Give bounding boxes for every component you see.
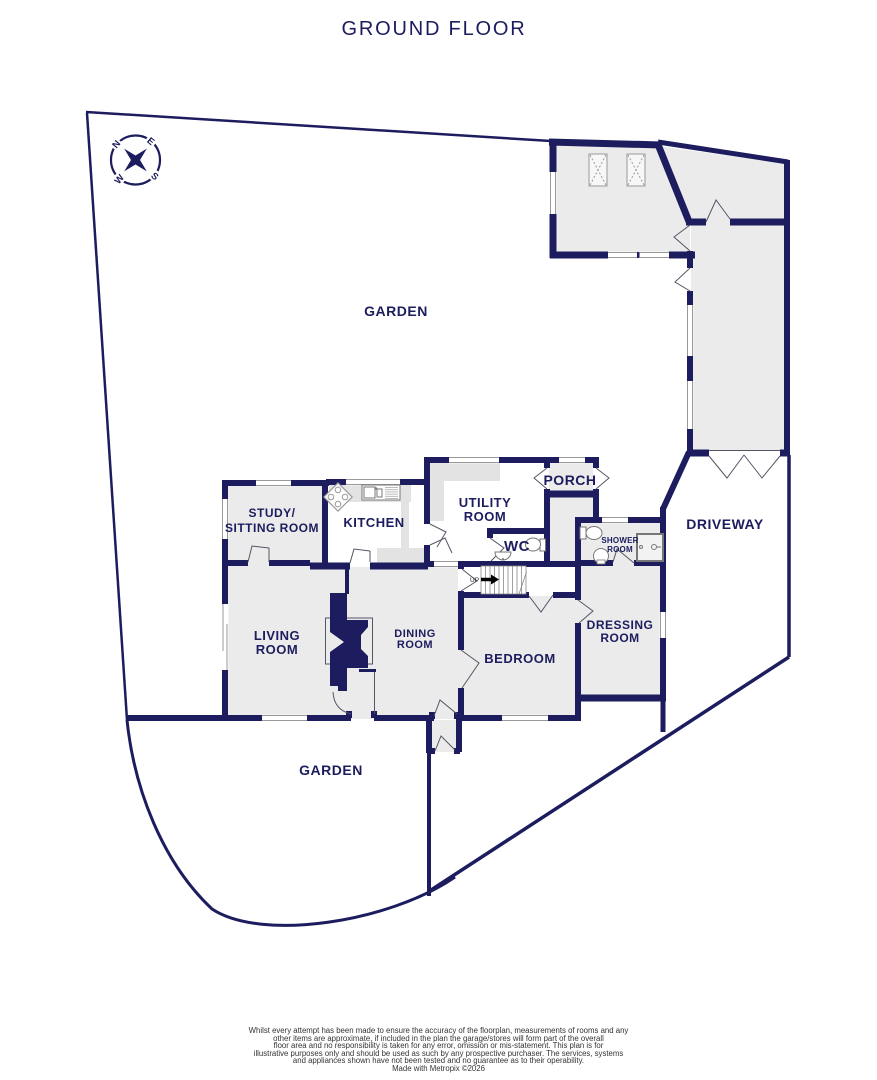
svg-text:STUDY/: STUDY/: [248, 506, 295, 520]
svg-text:SITTING ROOM: SITTING ROOM: [225, 521, 319, 535]
svg-text:ROOM: ROOM: [600, 631, 639, 645]
svg-text:GARDEN: GARDEN: [364, 303, 428, 319]
svg-text:PORCH: PORCH: [543, 472, 596, 488]
svg-text:ROOM: ROOM: [607, 545, 633, 554]
svg-text:ROOM: ROOM: [397, 639, 433, 651]
svg-text:LIVING: LIVING: [254, 628, 300, 643]
svg-text:ROOM: ROOM: [464, 509, 506, 524]
svg-text:BEDROOM: BEDROOM: [484, 651, 555, 666]
svg-text:GROUND FLOOR: GROUND FLOOR: [342, 18, 527, 40]
svg-text:DRIVEWAY: DRIVEWAY: [686, 516, 764, 532]
svg-text:SHOWER: SHOWER: [601, 536, 638, 545]
svg-text:DRESSING: DRESSING: [587, 618, 654, 632]
svg-text:WC: WC: [504, 538, 530, 555]
svg-text:UP: UP: [470, 577, 479, 584]
svg-text:ROOM: ROOM: [256, 642, 298, 657]
svg-text:GARDEN: GARDEN: [299, 762, 363, 778]
svg-text:UTILITY: UTILITY: [459, 495, 512, 510]
svg-text:KITCHEN: KITCHEN: [343, 515, 404, 530]
